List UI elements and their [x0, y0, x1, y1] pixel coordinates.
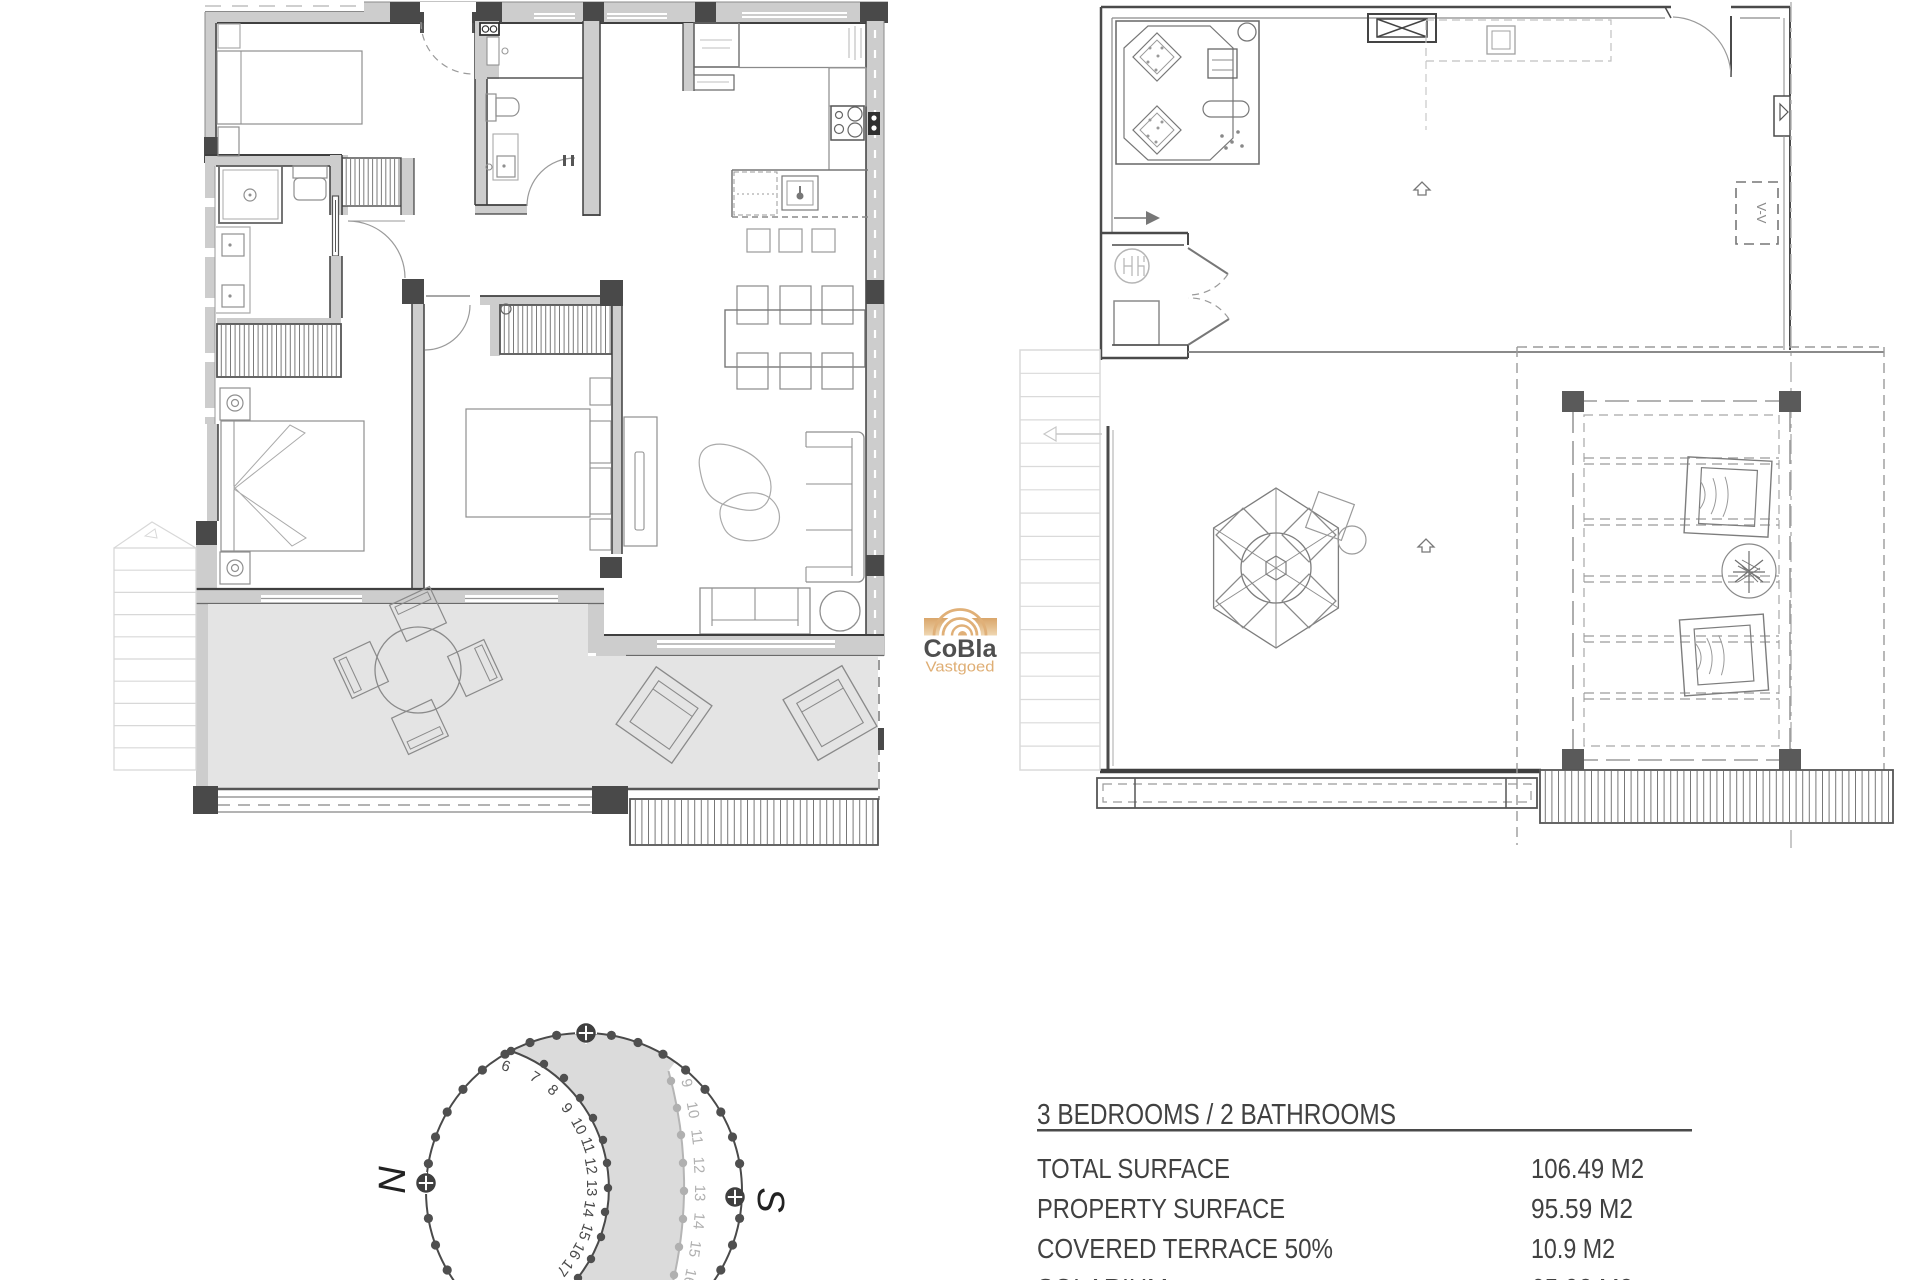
- svg-text:N: N: [372, 1166, 414, 1194]
- svg-text:COVERED TERRACE 50%: COVERED TERRACE 50%: [1037, 1233, 1333, 1264]
- svg-text:PROPERTY SURFACE: PROPERTY SURFACE: [1037, 1193, 1285, 1224]
- svg-text:V-V: V-V: [1754, 203, 1769, 224]
- svg-text:SOLARIUM: SOLARIUM: [1037, 1273, 1168, 1280]
- svg-text:10: 10: [683, 1100, 703, 1119]
- svg-text:10.9 M2: 10.9 M2: [1531, 1233, 1615, 1264]
- svg-text:95.59 M2: 95.59 M2: [1531, 1193, 1633, 1224]
- svg-text:S: S: [749, 1187, 791, 1212]
- svg-text:14: 14: [579, 1199, 599, 1218]
- svg-text:TOTAL SURFACE: TOTAL SURFACE: [1037, 1153, 1230, 1184]
- svg-text:14: 14: [689, 1212, 707, 1230]
- svg-text:65.92 M2: 65.92 M2: [1531, 1273, 1633, 1280]
- svg-text:13: 13: [691, 1185, 708, 1202]
- svg-text:Vastgoed: Vastgoed: [926, 660, 995, 676]
- svg-text:106.49 M2: 106.49 M2: [1531, 1153, 1644, 1184]
- svg-text:15: 15: [685, 1239, 704, 1258]
- svg-text:12: 12: [581, 1156, 601, 1175]
- svg-text:13: 13: [583, 1180, 600, 1197]
- svg-text:12: 12: [690, 1156, 708, 1174]
- svg-text:11: 11: [687, 1128, 706, 1146]
- svg-text:3 BEDROOMS / 2 BATHROOMS: 3 BEDROOMS / 2 BATHROOMS: [1037, 1099, 1396, 1131]
